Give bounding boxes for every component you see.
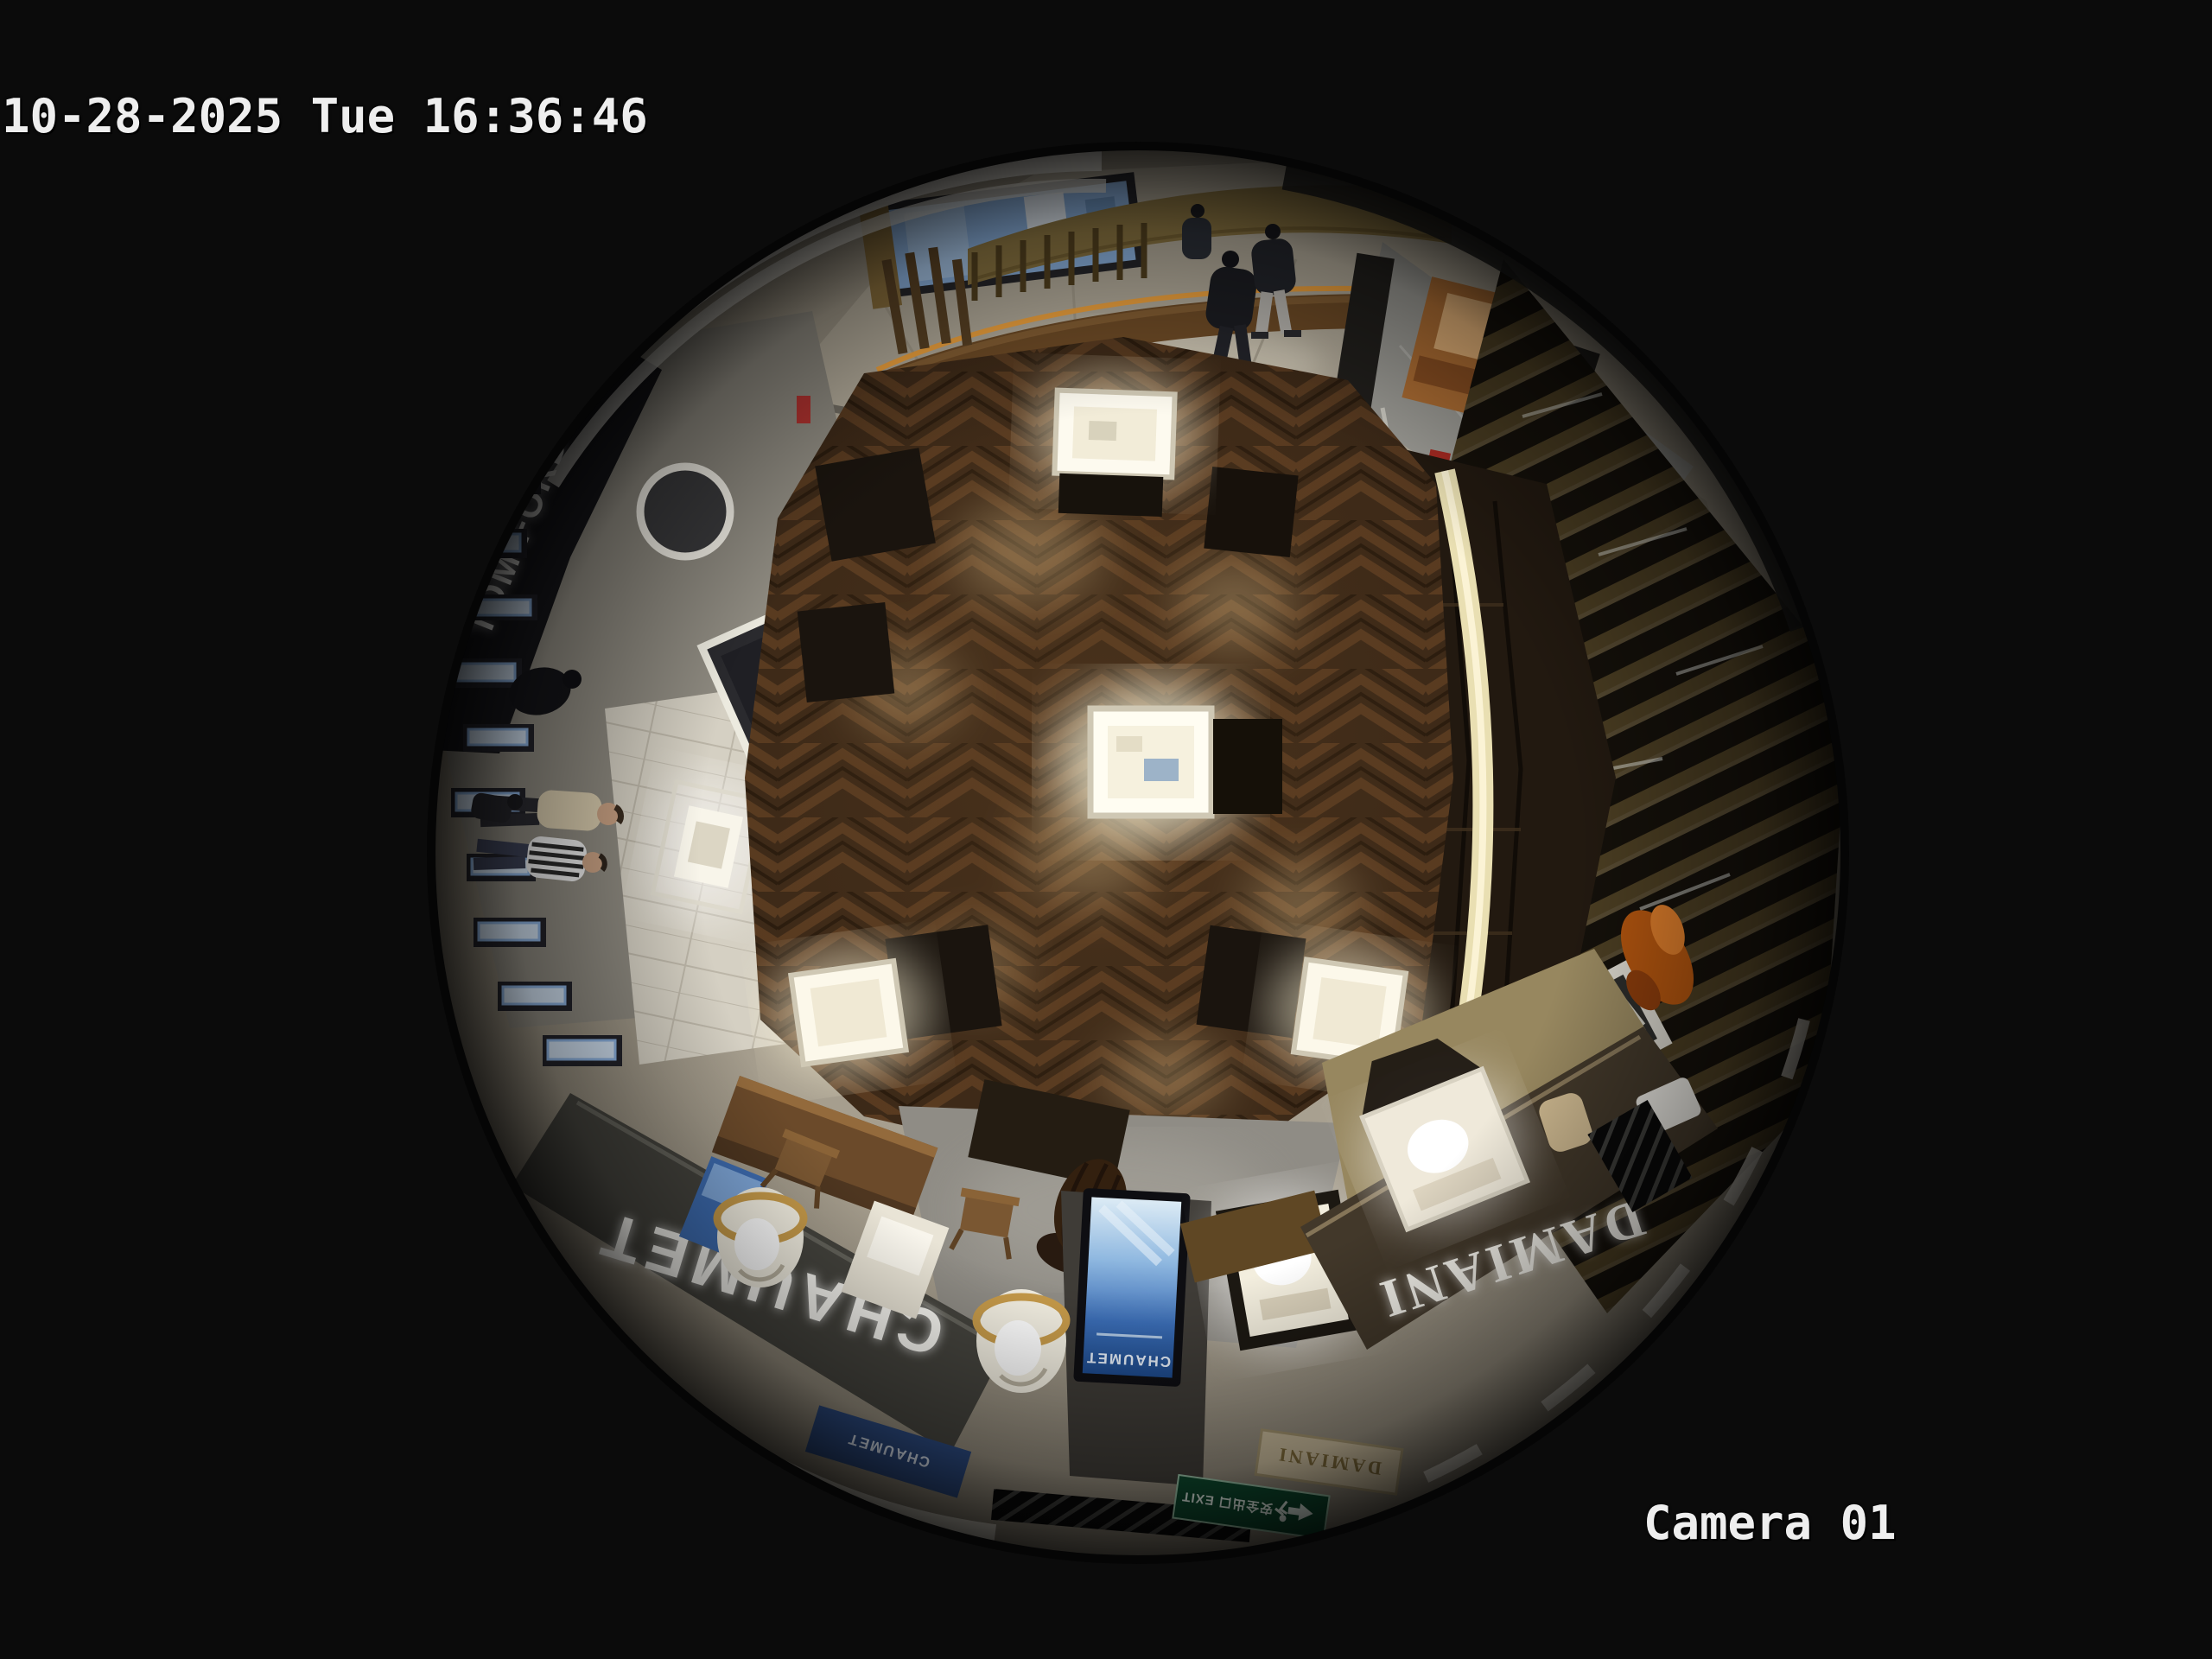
fisheye-camera-view: TOM FORD TOM FORD: [0, 0, 2212, 1659]
osd-timestamp: 10-28-2025 Tue 16:36:46: [2, 93, 648, 140]
cctv-frame: TOM FORD TOM FORD: [0, 0, 2212, 1659]
osd-camera-label: Camera 01: [1643, 1500, 1897, 1547]
fisheye-vignette: [431, 146, 1845, 1560]
